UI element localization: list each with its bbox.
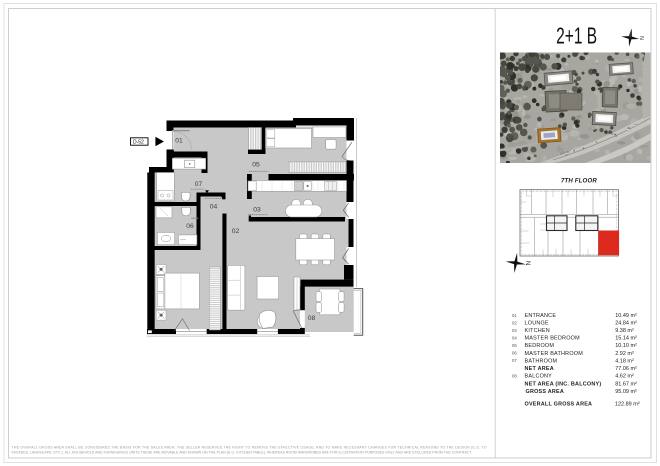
svg-text:9.38 m²: 9.38 m² <box>615 328 634 334</box>
svg-text:08: 08 <box>512 374 517 379</box>
svg-text:ENTRANCE: ENTRANCE <box>525 313 557 319</box>
svg-text:GROSS AREA: GROSS AREA <box>526 389 565 395</box>
svg-text:81.67 m²: 81.67 m² <box>615 382 637 388</box>
svg-text:NET AREA (INC. BALCONY): NET AREA (INC. BALCONY) <box>525 382 602 388</box>
svg-text:05: 05 <box>252 161 260 168</box>
svg-text:4.18 m²: 4.18 m² <box>615 358 634 364</box>
svg-text:01: 01 <box>512 313 517 318</box>
svg-text:15.14 m²: 15.14 m² <box>615 336 637 342</box>
svg-text:03: 03 <box>512 328 517 333</box>
svg-text:10.10 m²: 10.10 m² <box>615 343 637 349</box>
svg-text:06: 06 <box>512 351 517 356</box>
svg-text:01: 01 <box>175 137 183 144</box>
svg-text:04: 04 <box>512 336 517 341</box>
svg-text:N: N <box>638 36 644 40</box>
svg-text:BEDROOM: BEDROOM <box>525 343 555 349</box>
svg-text:BATHROOM: BATHROOM <box>525 358 558 364</box>
svg-text:4.62 m²: 4.62 m² <box>615 374 634 380</box>
svg-text:10.49 m²: 10.49 m² <box>615 313 637 319</box>
svg-text:KITCHEN: KITCHEN <box>525 328 550 334</box>
svg-text:04: 04 <box>210 203 218 210</box>
svg-text:N: N <box>524 261 530 265</box>
svg-text:122.89 m²: 122.89 m² <box>615 402 640 408</box>
svg-text:LOUNGE: LOUNGE <box>525 321 549 327</box>
svg-text:MASTER BEDROOM: MASTER BEDROOM <box>525 336 581 342</box>
svg-text:D-52: D-52 <box>133 140 144 146</box>
svg-text:03: 03 <box>253 206 261 213</box>
svg-text:07: 07 <box>195 181 203 188</box>
svg-text:BALCONY: BALCONY <box>525 374 553 380</box>
svg-text:06: 06 <box>186 223 194 230</box>
svg-text:2.92 m²: 2.92 m² <box>615 351 634 357</box>
svg-text:05: 05 <box>512 343 517 348</box>
svg-text:07: 07 <box>512 358 517 363</box>
svg-text:7TH FLOOR: 7TH FLOOR <box>561 178 597 185</box>
svg-text:77.06 m²: 77.06 m² <box>615 366 637 372</box>
svg-text:02: 02 <box>512 321 517 326</box>
svg-text:FACADES, LANDSCAPE, ETC.). ALL: FACADES, LANDSCAPE, ETC.). ALL HOUSEHOLD… <box>12 451 473 455</box>
svg-text:THE OVERALL GROSS AREA SHALL B: THE OVERALL GROSS AREA SHALL BE CONSIDER… <box>12 446 487 450</box>
svg-text:OVERALL GROSS AREA: OVERALL GROSS AREA <box>525 402 593 408</box>
svg-text:95.09 m²: 95.09 m² <box>615 389 637 395</box>
svg-text:MASTER BATHROOM: MASTER BATHROOM <box>525 351 584 357</box>
svg-text:NET AREA: NET AREA <box>525 366 554 372</box>
svg-text:2+1 B: 2+1 B <box>556 23 597 49</box>
svg-text:02: 02 <box>232 228 240 235</box>
svg-text:24.84 m²: 24.84 m² <box>615 321 637 327</box>
svg-text:08: 08 <box>308 315 316 322</box>
